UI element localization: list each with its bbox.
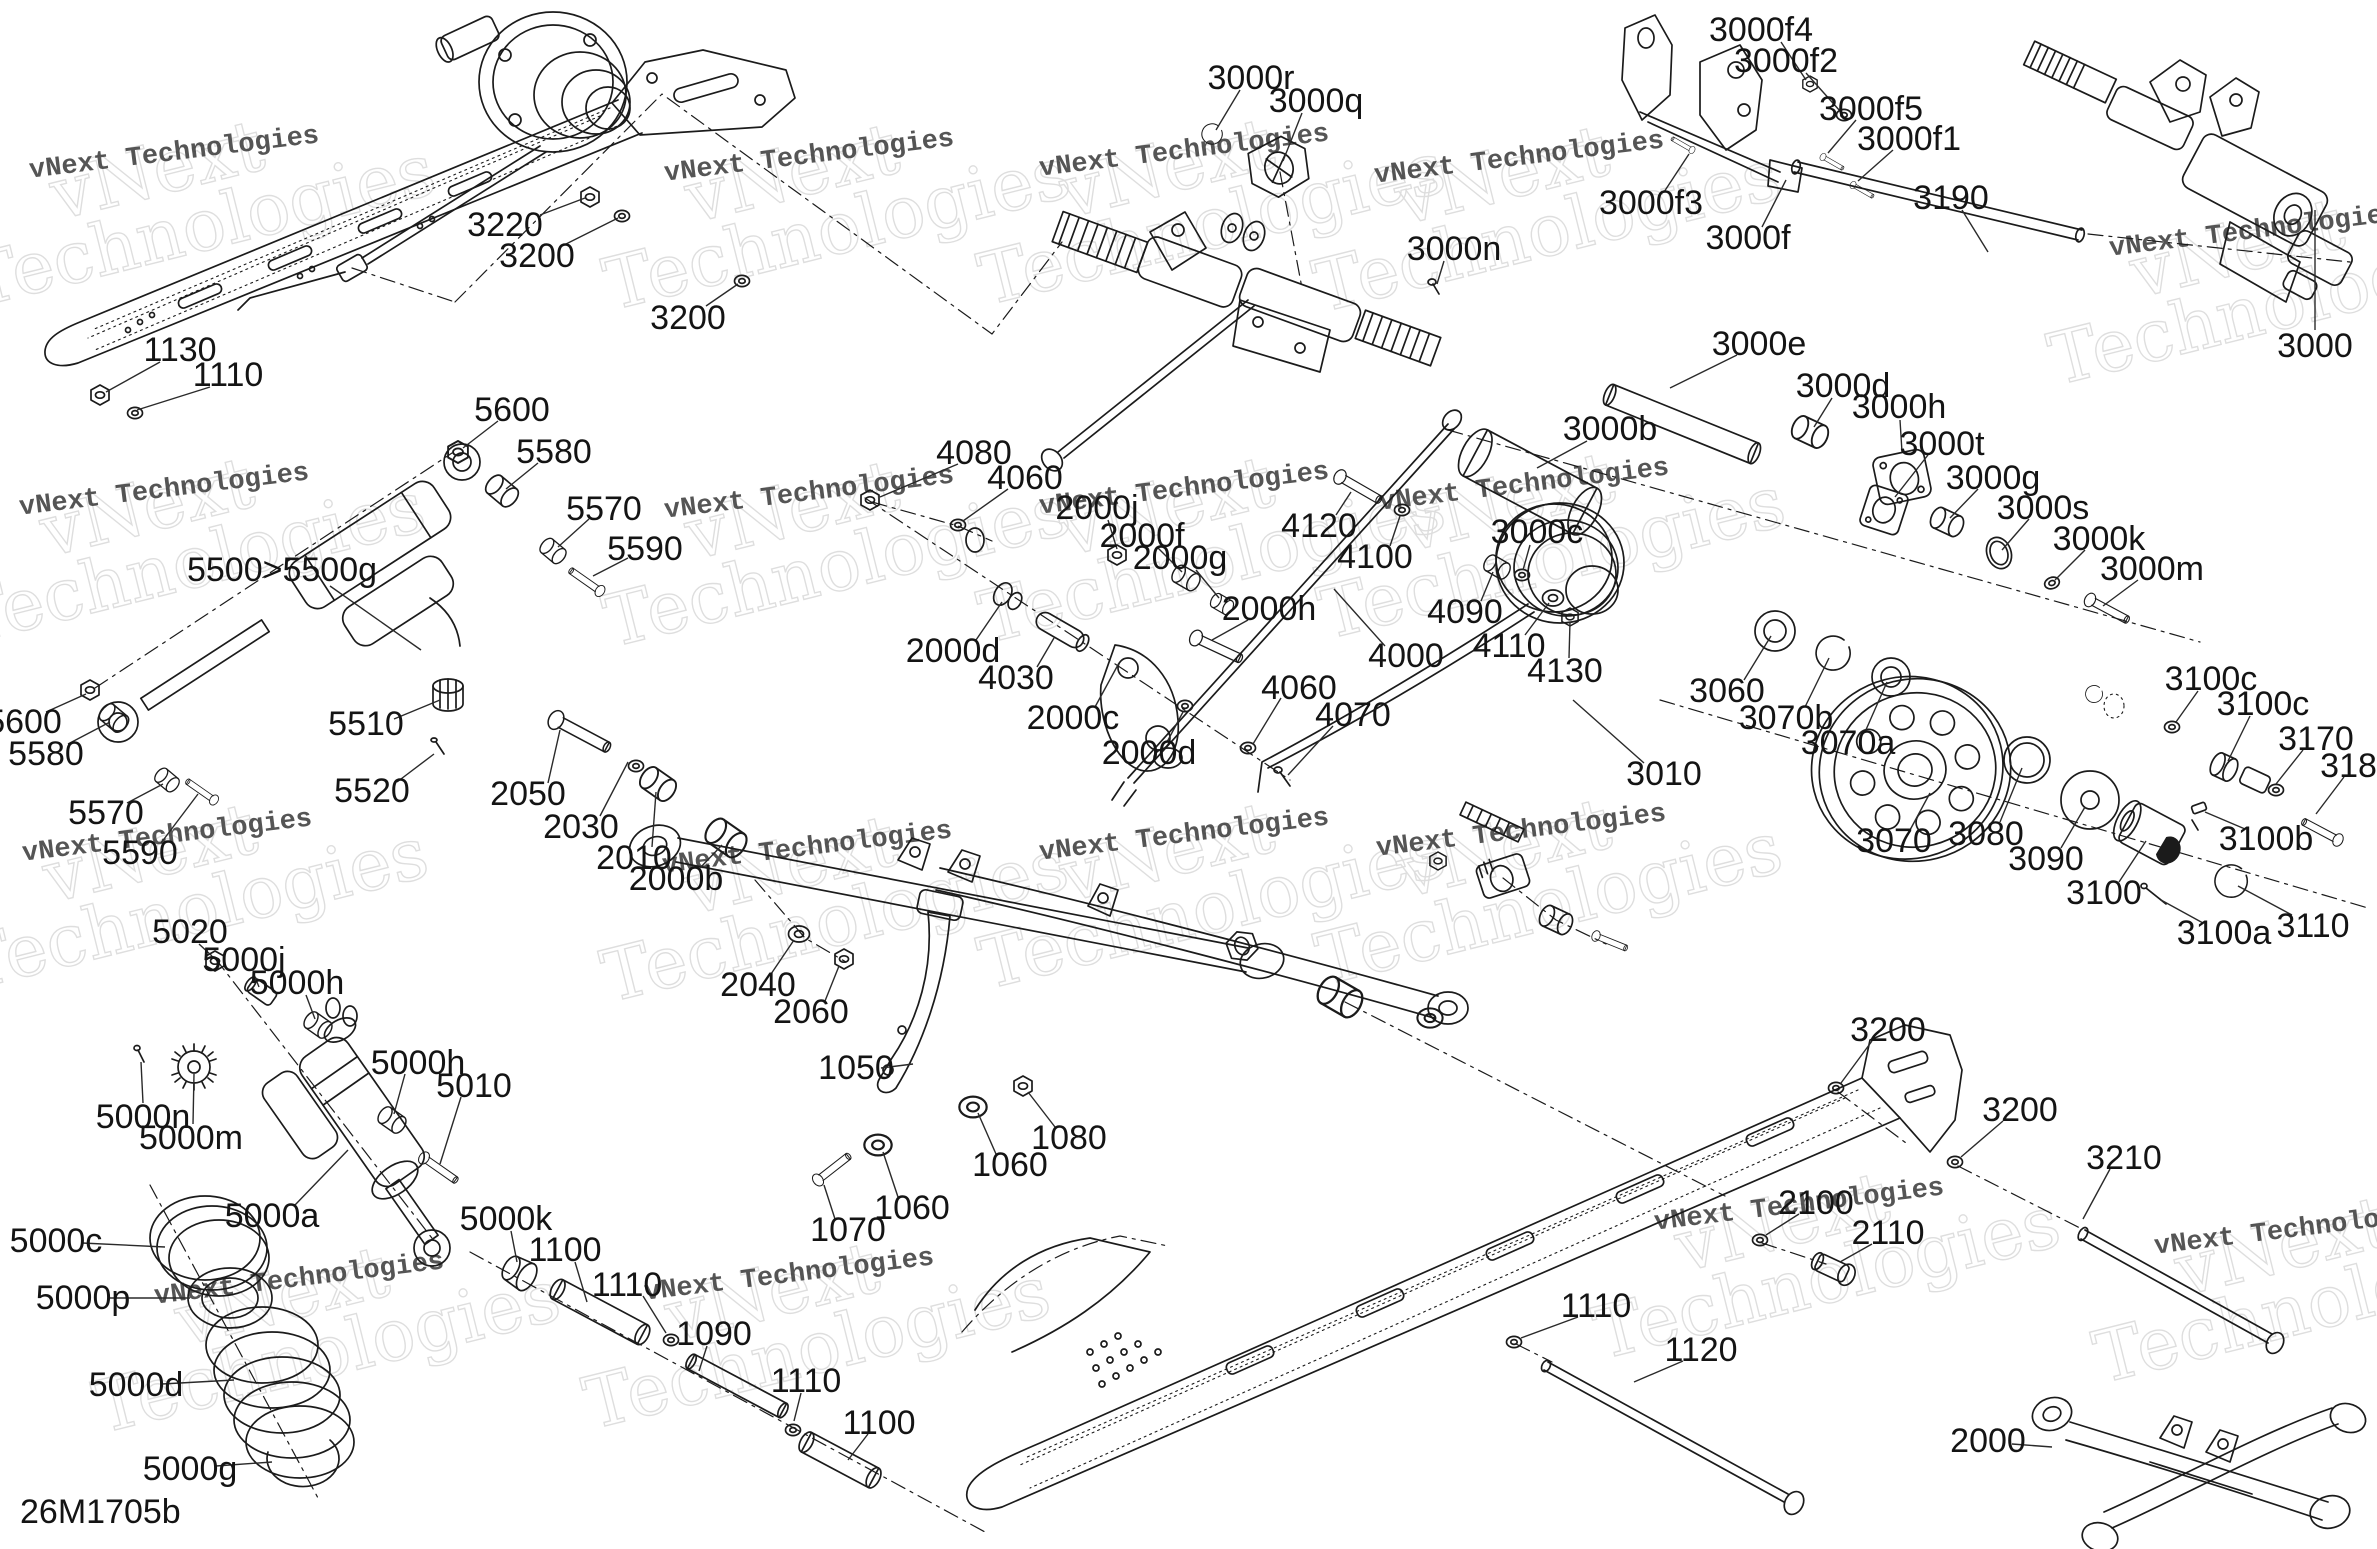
leader-line	[193, 1074, 194, 1124]
leader-line	[540, 198, 585, 215]
watermark: vNextTechnologiesvNext Technologies	[85, 1229, 568, 1450]
diagram-code: 26M1705b	[20, 1493, 181, 1531]
part-label-5600: 5600	[474, 391, 550, 429]
part-label-4070: 4070	[1315, 696, 1391, 734]
leader-line	[1573, 700, 1644, 763]
part-label-1120: 1120	[1664, 1331, 1737, 1369]
part-label-5000p: 5000p	[36, 1279, 131, 1317]
part-label-3000: 3000	[2277, 327, 2353, 365]
part-label-5000m: 5000m	[139, 1119, 243, 1157]
part-label-1050: 1050	[818, 1049, 894, 1087]
part-label-3090: 3090	[2008, 840, 2084, 878]
part-label-3100a: 3100a	[2177, 914, 2272, 952]
part-label-3000n: 3000n	[1407, 230, 1502, 268]
part-label-2000h: 2000h	[1222, 590, 1317, 628]
part-label-5590: 5590	[607, 530, 683, 568]
part-label-3070: 3070	[1856, 822, 1932, 860]
part-label-3000f2: 3000f2	[1734, 42, 1838, 80]
part-label-3000m: 3000m	[2100, 550, 2204, 588]
leader-line	[330, 586, 421, 650]
part-label-2000: 2000	[1950, 1422, 2026, 1460]
parts-diagram-page: vNextTechnologiesvNext TechnologiesvNext…	[0, 0, 2377, 1549]
lower-a-arm	[2028, 1392, 2370, 1549]
part-label-3200: 3200	[1850, 1011, 1926, 1049]
part-label-1090: 1090	[676, 1315, 752, 1353]
part-label-3000f: 3000f	[1705, 219, 1791, 257]
part-label-3180: 3180	[2320, 747, 2377, 785]
part-label-3190: 3190	[1913, 179, 1989, 217]
part-label-2100: 2100	[1778, 1184, 1854, 1222]
part-label-1110: 1110	[1561, 1287, 1632, 1325]
part-label-3000q: 3000q	[1269, 82, 1364, 120]
part-label-3000f1: 3000f1	[1857, 120, 1961, 158]
part-label-3200: 3200	[650, 299, 726, 337]
part-label-5500>5500g: 5500>5500g	[187, 551, 377, 589]
part-label-3000c: 3000c	[1491, 513, 1584, 551]
part-label-4130: 4130	[1527, 652, 1603, 690]
exploded-view-canvas: vNextTechnologiesvNext TechnologiesvNext…	[0, 0, 2377, 1549]
part-label-5590: 5590	[102, 834, 178, 872]
watermark: vNextTechnologiesvNext Technologies	[2085, 1179, 2377, 1400]
part-label-3200: 3200	[1982, 1091, 2058, 1129]
part-label-5000a: 5000a	[225, 1197, 320, 1235]
watermark: vNextTechnologiesvNext Technologies	[2040, 181, 2377, 402]
part-label-1060: 1060	[972, 1146, 1048, 1184]
part-label-3010: 3010	[1626, 755, 1702, 793]
part-label-5520: 5520	[334, 772, 410, 810]
part-label-3100: 3100	[2066, 874, 2142, 912]
part-label-2000c: 2000c	[1027, 699, 1120, 737]
leader-line	[141, 1062, 143, 1103]
part-label-1110: 1110	[193, 356, 264, 394]
part-label-5580: 5580	[516, 433, 592, 471]
part-label-3000h: 3000h	[1852, 388, 1947, 426]
part-label-4090: 4090	[1427, 593, 1503, 631]
part-label-3000t: 3000t	[1899, 425, 1985, 463]
part-label-5570: 5570	[68, 794, 144, 832]
part-label-3000f3: 3000f3	[1599, 184, 1703, 222]
part-label-4060: 4060	[987, 459, 1063, 497]
part-label-5000g: 5000g	[143, 1450, 238, 1488]
part-label-2000d: 2000d	[1102, 734, 1197, 772]
part-label-3100c: 3100c	[2217, 685, 2310, 723]
part-label-3000b: 3000b	[1563, 410, 1658, 448]
part-label-5000d: 5000d	[89, 1366, 184, 1404]
part-label-5000c: 5000c	[10, 1222, 103, 1260]
part-label-5010: 5010	[436, 1067, 512, 1105]
part-label-3000e: 3000e	[1712, 325, 1807, 363]
part-label-3110: 3110	[2276, 907, 2349, 945]
part-label-4000: 4000	[1368, 637, 1444, 675]
part-label-2110: 2110	[1851, 1214, 1924, 1252]
part-label-5570: 5570	[566, 490, 642, 528]
leader-line	[440, 1097, 461, 1164]
part-label-5510: 5510	[328, 705, 404, 743]
part-label-3210: 3210	[2086, 1139, 2162, 1177]
part-label-2000b: 2000b	[629, 860, 724, 898]
part-label-3200: 3200	[499, 237, 575, 275]
part-label-1110: 1110	[592, 1266, 663, 1304]
part-label-1070: 1070	[810, 1211, 886, 1249]
part-label-2060: 2060	[773, 993, 849, 1031]
part-label-4100: 4100	[1337, 538, 1413, 576]
part-label-1100: 1100	[842, 1404, 915, 1442]
part-label-5000h: 5000h	[250, 964, 345, 1002]
part-label-1110: 1110	[771, 1362, 842, 1400]
part-label-4030: 4030	[978, 659, 1054, 697]
part-label-2000g: 2000g	[1133, 539, 1228, 577]
part-label-3100b: 3100b	[2219, 820, 2314, 858]
part-label-5580: 5580	[8, 735, 84, 773]
part-label-3070a: 3070a	[1801, 724, 1896, 762]
part-label-1100: 1100	[528, 1231, 601, 1269]
